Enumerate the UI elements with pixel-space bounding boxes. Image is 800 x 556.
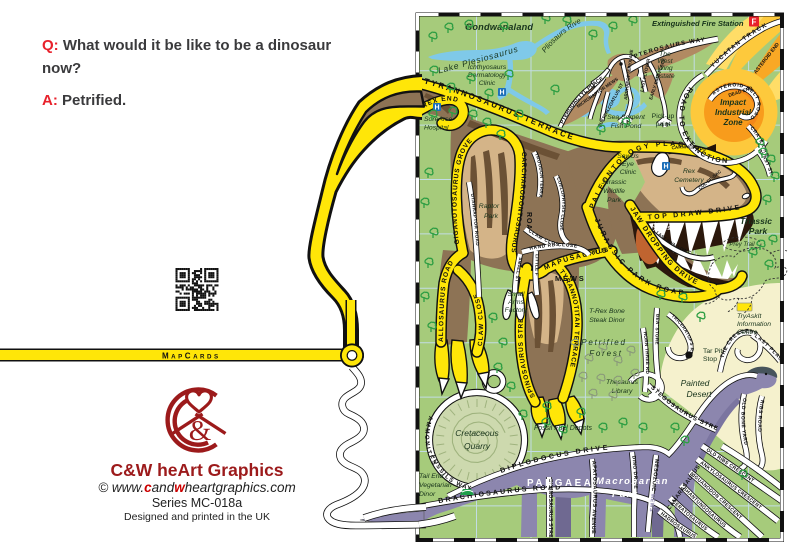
svg-text:PANGAEA: PANGAEA <box>527 478 593 489</box>
svg-text:Impact: Impact <box>720 98 746 107</box>
svg-text:TryAskIt: TryAskIt <box>737 313 763 320</box>
svg-text:Series MC-018a: Series MC-018a <box>152 496 242 510</box>
svg-text:Tail End: Tail End <box>419 473 444 480</box>
svg-text:SawUs: SawUs <box>617 153 639 160</box>
svg-text:Cemetery: Cemetery <box>674 177 704 184</box>
svg-text:Centre: Centre <box>737 329 758 336</box>
svg-text:point: point <box>656 121 671 128</box>
svg-text:Zone: Zone <box>722 118 743 127</box>
svg-text:Industrial: Industrial <box>715 108 752 117</box>
svg-text:Designed and printed in the UK: Designed and printed in the UK <box>124 511 270 523</box>
svg-text:Prey Trail: Prey Trail <box>729 242 755 248</box>
svg-text:Wing: Wing <box>657 65 673 72</box>
svg-text:Eye: Eye <box>622 161 634 168</box>
svg-text:MEWS: MEWS <box>555 274 586 283</box>
svg-text:&: & <box>189 415 212 447</box>
svg-text:Desert: Desert <box>686 389 712 399</box>
svg-text:LITTLE F: LITTLE F <box>534 254 539 276</box>
svg-text:Extinguished Fire Station: Extinguished Fire Station <box>652 19 744 28</box>
svg-text:Q: What would it be like to be: Q: What would it be like to be a dinosau… <box>42 37 331 54</box>
svg-text:Dermatology: Dermatology <box>468 72 507 79</box>
svg-text:Raptor: Raptor <box>479 203 500 210</box>
svg-text:Park: Park <box>612 489 639 500</box>
svg-text:SoreArse: SoreArse <box>424 116 453 123</box>
svg-text:C&W heArt Graphics: C&W heArt Graphics <box>110 460 283 480</box>
svg-text:Stop: Stop <box>703 356 717 363</box>
svg-text:T-Rex Bone: T-Rex Bone <box>589 308 625 315</box>
svg-text:Dinor: Dinor <box>419 491 436 498</box>
svg-text:Park: Park <box>607 197 622 204</box>
svg-text:Small: Small <box>508 291 525 298</box>
svg-text:A: Petrified.: A: Petrified. <box>42 92 126 109</box>
svg-text:Arms: Arms <box>507 299 524 306</box>
svg-text:West: West <box>657 58 673 65</box>
svg-text:Park: Park <box>484 213 499 220</box>
svg-text:Pick-up: Pick-up <box>652 113 675 120</box>
svg-text:Quarry: Quarry <box>464 441 491 451</box>
svg-text:Petrified: Petrified <box>581 338 627 347</box>
svg-text:Clinic: Clinic <box>620 169 637 176</box>
svg-text:now?: now? <box>42 60 81 77</box>
svg-text:Painted: Painted <box>681 378 710 388</box>
svg-text:Estate: Estate <box>655 73 674 80</box>
svg-text:Cretaceous: Cretaceous <box>455 428 499 438</box>
svg-text:Rex: Rex <box>683 168 696 175</box>
svg-text:Tar Pit: Tar Pit <box>703 348 722 355</box>
svg-text:Hospital: Hospital <box>424 125 449 132</box>
svg-text:Information: Information <box>737 321 771 328</box>
svg-text:Clinic: Clinic <box>479 80 496 87</box>
svg-text:Steak Dinor: Steak Dinor <box>589 317 625 324</box>
svg-text:Factory: Factory <box>505 307 528 314</box>
svg-text:Wildlife: Wildlife <box>603 188 625 195</box>
svg-text:Triassic: Triassic <box>740 216 772 226</box>
svg-text:Sea Serpent: Sea Serpent <box>607 114 646 121</box>
svg-text:Macronarian: Macronarian <box>596 476 669 487</box>
svg-text:Gondwanaland: Gondwanaland <box>465 22 533 32</box>
svg-text:Park: Park <box>749 226 769 236</box>
svg-text:Vegetarian: Vegetarian <box>419 482 452 489</box>
svg-text:Jurassic: Jurassic <box>601 179 628 186</box>
svg-text:MAPCARDS: MAPCARDS <box>162 352 221 361</box>
svg-text:F: F <box>752 18 757 27</box>
svg-text:The: The <box>659 51 671 58</box>
svg-text:© www.candwheartgraphics.com: © www.candwheartgraphics.com <box>98 480 296 495</box>
svg-text:Ichthyosaurs: Ichthyosaurs <box>468 64 507 71</box>
